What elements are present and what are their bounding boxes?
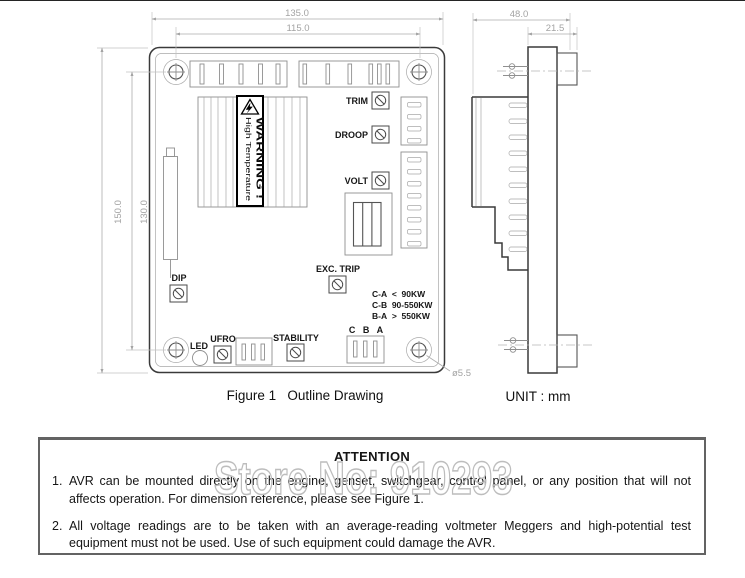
side-plate (528, 47, 557, 373)
strip-slot (408, 170, 422, 175)
fin-slot (509, 199, 527, 204)
ufro-label: UFRO (210, 334, 236, 344)
rating-line: C-B 90-550KW (372, 300, 433, 310)
dip-label: DIP (171, 273, 186, 283)
attention-item-number: 1. (52, 473, 69, 509)
terminal-slot (354, 341, 358, 357)
stability-potentiometer (287, 344, 304, 361)
figure-caption: Figure 1 Outline Drawing (227, 388, 384, 403)
fin-slot (509, 247, 527, 252)
attention-title: ATTENTION (40, 449, 704, 464)
terminal-slot (374, 341, 378, 357)
fin-slot (509, 103, 527, 108)
connector-strip-lower (401, 152, 427, 248)
terminal-block-top-right (299, 61, 399, 87)
strip-slot (408, 139, 422, 144)
fin-slot (509, 151, 527, 156)
terminal-slot (369, 64, 373, 84)
dim-overall-height: 150.0 (113, 200, 124, 224)
dim-overall-depth: 48.0 (510, 9, 529, 20)
attention-item-text: All voltage readings are to be taken wit… (69, 518, 691, 554)
bottom-boss (557, 335, 577, 367)
strip-slot (408, 206, 422, 211)
strip-slot (408, 230, 422, 235)
terminal-slot (303, 64, 307, 84)
attention-box: ATTENTION 1. AVR can be mounted directly… (38, 437, 706, 555)
droop-label: DROOP (335, 130, 368, 140)
outline-drawing: WARNING ! High Temperature TRIM DROOP VO… (0, 0, 745, 430)
trim-label: TRIM (346, 96, 368, 106)
led-label: LED (190, 341, 209, 351)
terminal-slot (386, 64, 390, 84)
fin-slot (509, 215, 527, 220)
dimension-lines: 135.0 115.0 150.0 130.0 48.0 21.5 (97, 8, 577, 373)
dim-hole-span-height: 130.0 (139, 200, 150, 224)
warning-label: WARNING ! High Temperature (237, 96, 266, 206)
terminal-block-top-left (190, 61, 287, 87)
terminal-slot (378, 64, 382, 84)
top-boss (557, 53, 577, 85)
strip-slot (408, 194, 422, 199)
exc-trip-label: EXC. TRIP (316, 264, 360, 274)
strip-slot (408, 242, 422, 247)
dim-body-depth: 21.5 (546, 23, 565, 34)
terminal-slot (242, 344, 246, 360)
strip-slot (408, 115, 422, 120)
strip-slot (408, 182, 422, 187)
terminal-slot (252, 344, 256, 360)
mounting-hole-top-right (407, 60, 432, 85)
connector-strip-upper (401, 97, 427, 145)
terminal-slot (220, 64, 224, 84)
strip-slot (408, 127, 422, 132)
warning-text-line1: WARNING ! (254, 117, 266, 199)
mounting-hole-top-left (164, 60, 189, 85)
hole-diameter-label: ø5.5 (452, 368, 471, 379)
dim-hole-span-width: 115.0 (286, 23, 309, 34)
capacitor (164, 148, 178, 278)
side-heatsink (472, 97, 528, 270)
unit-label: UNIT : mm (506, 389, 571, 404)
fin-slot (509, 119, 527, 124)
dip-potentiometer (170, 285, 187, 302)
terminal-slot (259, 64, 263, 84)
strip-slot (408, 218, 422, 223)
transformer (345, 193, 392, 255)
terminal-slot (348, 64, 352, 84)
fin-slot (509, 231, 527, 236)
volt-potentiometer (372, 172, 389, 189)
terminal-slot (239, 64, 243, 84)
exc-trip-potentiometer (329, 276, 346, 293)
cba-label: C B A (349, 325, 384, 335)
connector-block-cba (347, 336, 384, 363)
rating-line: B-A > 550KW (372, 311, 431, 321)
fin-slot (509, 183, 527, 188)
power-rating-table: C-A < 90KW C-B 90-550KW B-A > 550KW (372, 289, 433, 321)
side-view (472, 47, 592, 373)
attention-item-2: 2. All voltage readings are to be taken … (52, 518, 691, 554)
fin-slot (509, 135, 527, 140)
trim-potentiometer (372, 92, 389, 109)
ufro-potentiometer (214, 346, 231, 363)
strip-slot (408, 103, 422, 108)
terminal-slot (200, 64, 204, 84)
image-top-border (0, 0, 745, 1)
terminal-slot (276, 64, 280, 84)
droop-potentiometer (372, 126, 389, 143)
mounting-hole-bottom-right (407, 338, 432, 363)
fin-slot (509, 167, 527, 172)
avr-board-outline (150, 48, 445, 373)
attention-item-text: AVR can be mounted directly on the engin… (69, 473, 691, 509)
rating-line: C-A < 90KW (372, 289, 426, 299)
led-indicator (193, 351, 208, 366)
terminal-slot (326, 64, 330, 84)
stability-label: STABILITY (273, 333, 319, 343)
warning-text-line2: High Temperature (244, 117, 251, 201)
terminal-slot (261, 344, 265, 360)
connector-block-bottom (236, 338, 272, 365)
volt-label: VOLT (345, 176, 369, 186)
attention-item-1: 1. AVR can be mounted directly on the en… (52, 473, 691, 509)
dim-overall-width: 135.0 (285, 8, 309, 19)
mounting-hole-bottom-left (164, 338, 189, 363)
attention-item-number: 2. (52, 518, 69, 554)
terminal-slot (364, 341, 368, 357)
bottom-screw-terminals (498, 338, 592, 353)
strip-slot (408, 158, 422, 163)
top-screw-terminals (497, 64, 592, 79)
front-view: WARNING ! High Temperature TRIM DROOP VO… (150, 48, 472, 380)
